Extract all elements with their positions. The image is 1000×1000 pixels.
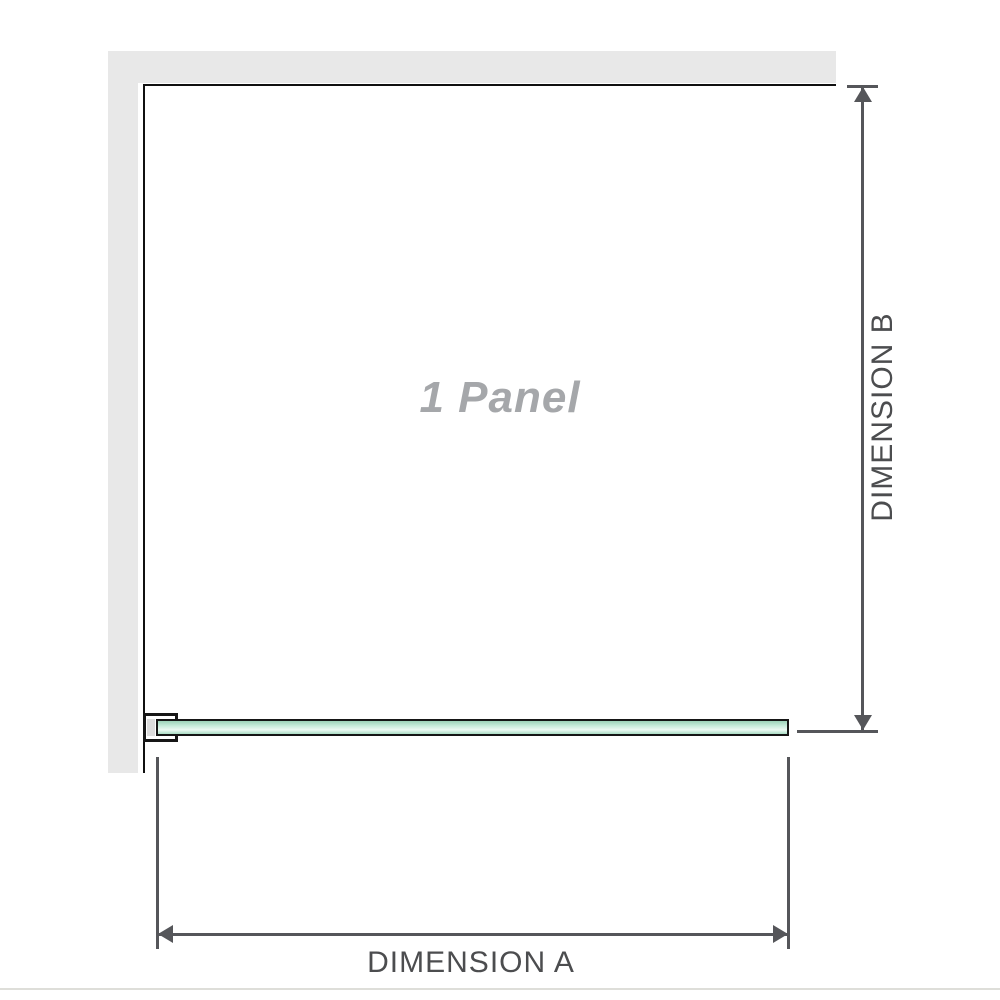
dimension-b-arrowhead-down-icon xyxy=(854,715,872,730)
wall-mount-bracket-pad xyxy=(147,719,155,736)
top-wall-edge-line xyxy=(143,84,836,86)
shower-panel-dimension-diagram: 1 Panel DIMENSION B DIMENSION A xyxy=(0,0,1000,1000)
dimension-a-arrowhead-right-icon xyxy=(773,925,788,943)
dimension-a-left-extension-line xyxy=(156,757,159,949)
panel-count-label: 1 Panel xyxy=(340,372,660,424)
dimension-a-line xyxy=(158,933,788,936)
dimension-a-right-extension-line xyxy=(787,757,790,949)
dimension-a-arrowhead-left-icon xyxy=(158,925,173,943)
dimension-b-arrowhead-up-icon xyxy=(854,87,872,102)
dimension-b-label: DIMENSION B xyxy=(866,302,900,532)
dimension-a-label: DIMENSION A xyxy=(311,946,631,980)
glass-panel xyxy=(156,719,789,736)
left-wall-edge-line xyxy=(143,84,145,773)
top-wall xyxy=(108,51,836,83)
dimension-b-bottom-tick xyxy=(797,730,878,733)
dimension-b-line xyxy=(861,86,864,731)
bottom-separator-line xyxy=(0,988,1000,990)
left-wall xyxy=(108,51,138,773)
